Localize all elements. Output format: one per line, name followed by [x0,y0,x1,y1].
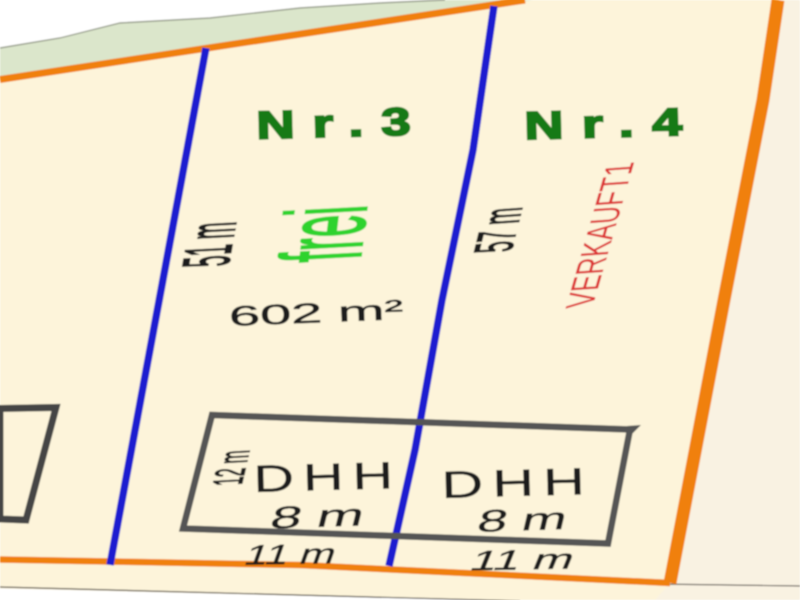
svg-text:12 m: 12 m [203,449,259,487]
svg-text:57 m: 57 m [462,206,534,255]
svg-text:8 m: 8 m [267,497,369,535]
svg-text:8 m: 8 m [474,501,571,539]
svg-text:DHH: DHH [441,461,595,507]
svg-text:Nr.3: Nr.3 [256,99,430,147]
svg-text:frei: frei [259,203,392,265]
svg-text:11 m: 11 m [465,544,580,577]
svg-text:Nr.4: Nr.4 [524,99,701,148]
svg-text:51 m: 51 m [170,221,251,269]
svg-text:11 m: 11 m [240,538,341,571]
svg-text:DHH: DHH [253,455,403,501]
